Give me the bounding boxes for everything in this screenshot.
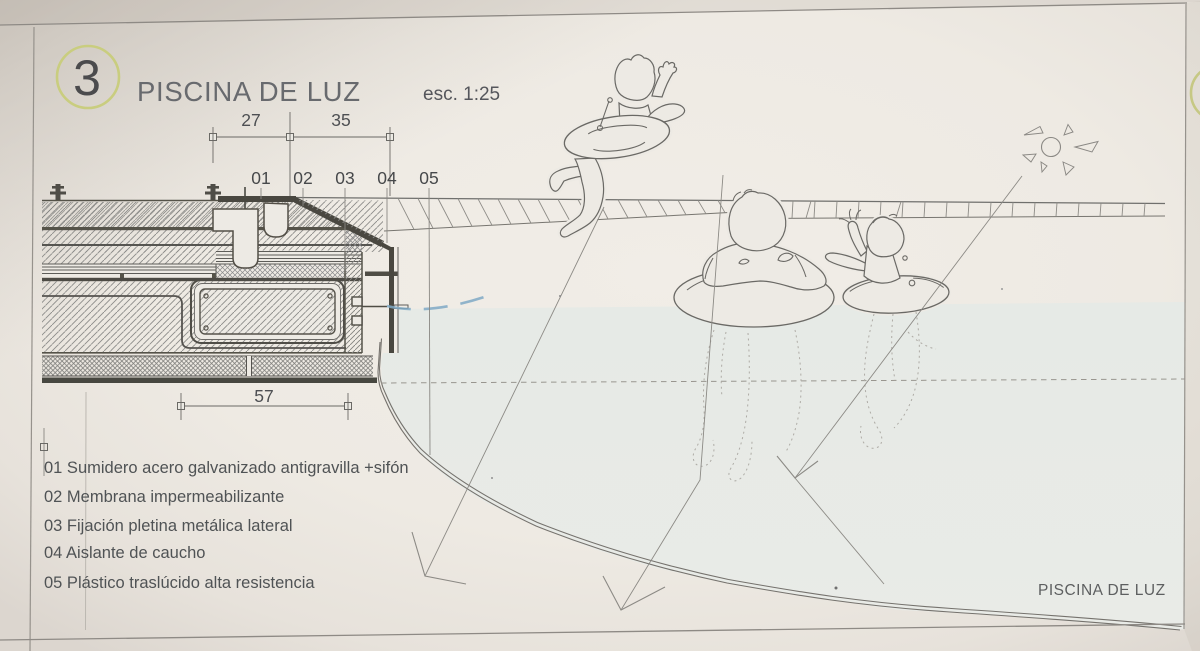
svg-text:03: 03 — [335, 168, 354, 188]
svg-text:01: 01 — [251, 168, 270, 188]
svg-text:3: 3 — [73, 50, 101, 106]
svg-text:05: 05 — [419, 168, 438, 188]
svg-text:esc. 1:25: esc. 1:25 — [423, 84, 500, 105]
svg-text:02: 02 — [293, 168, 312, 188]
svg-text:04 Aislante de caucho: 04 Aislante de caucho — [44, 544, 205, 562]
svg-text:02 Membrana impermeabilizante: 02 Membrana impermeabilizante — [44, 488, 284, 506]
svg-text:PISCINA DE LUZ: PISCINA DE LUZ — [137, 76, 361, 107]
svg-text:01 Sumidero acero galvanizado: 01 Sumidero acero galvanizado antigravil… — [44, 459, 409, 477]
svg-text:04: 04 — [377, 168, 397, 188]
svg-text:57: 57 — [254, 386, 273, 406]
svg-text:27: 27 — [241, 110, 260, 130]
svg-text:03 Fijación pletina metálica l: 03 Fijación pletina metálica lateral — [44, 517, 293, 535]
svg-text:35: 35 — [331, 110, 350, 130]
svg-text:05 Plástico traslúcido alta re: 05 Plástico traslúcido alta resistencia — [44, 574, 315, 592]
svg-text:PISCINA DE LUZ: PISCINA DE LUZ — [1038, 582, 1166, 599]
